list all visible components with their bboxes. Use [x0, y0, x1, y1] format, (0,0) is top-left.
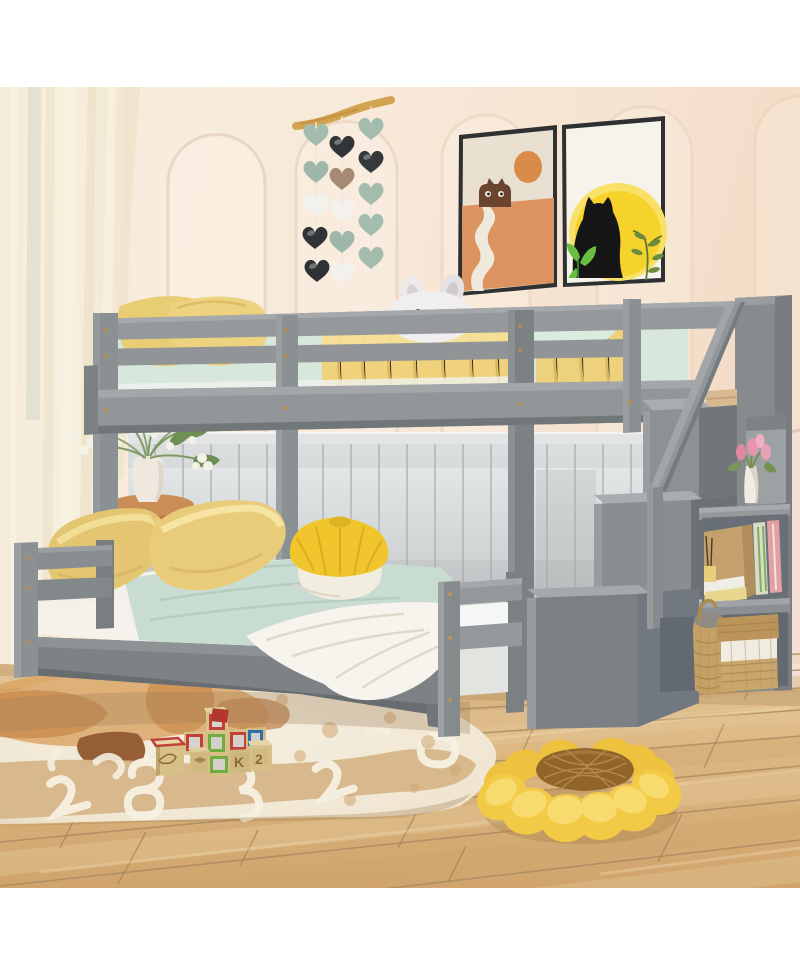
svg-text:2: 2: [255, 751, 263, 767]
svg-text:K: K: [234, 754, 244, 770]
